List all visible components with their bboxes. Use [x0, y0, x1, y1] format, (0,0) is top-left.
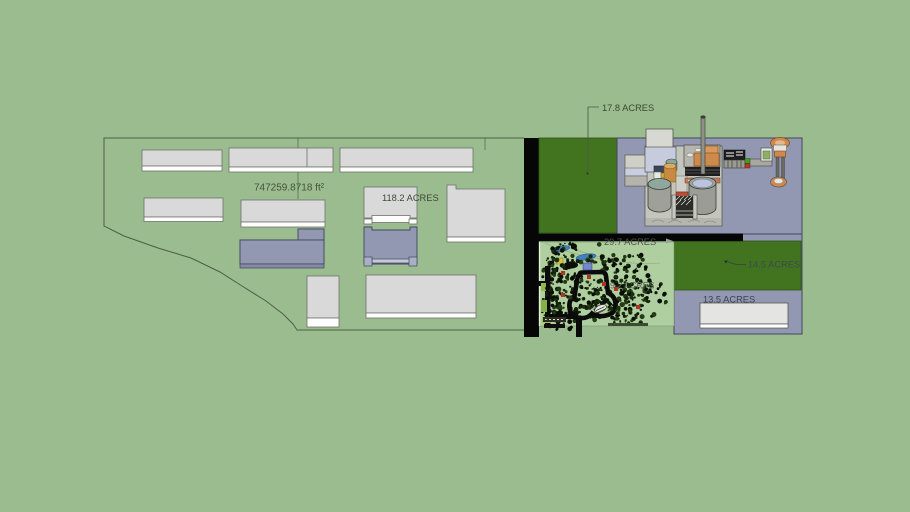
svg-text:118.2 ACRES: 118.2 ACRES — [382, 193, 439, 203]
svg-text:13.5 ACRES: 13.5 ACRES — [703, 295, 755, 305]
svg-text:747259.8718 ft²: 747259.8718 ft² — [254, 183, 325, 194]
svg-text:29.7 ACRES: 29.7 ACRES — [604, 237, 656, 247]
svg-text:14.5 ACRES: 14.5 ACRES — [748, 260, 800, 270]
svg-text:17.8 ACRES: 17.8 ACRES — [602, 103, 654, 113]
